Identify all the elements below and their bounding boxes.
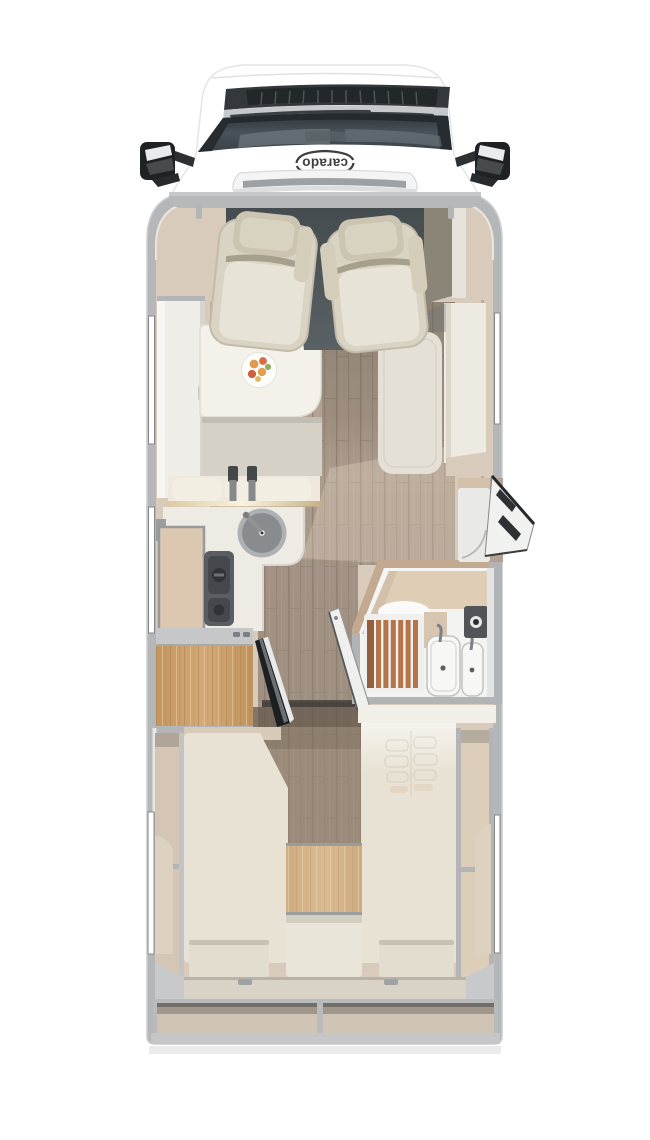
svg-text:carado: carado — [302, 156, 348, 171]
